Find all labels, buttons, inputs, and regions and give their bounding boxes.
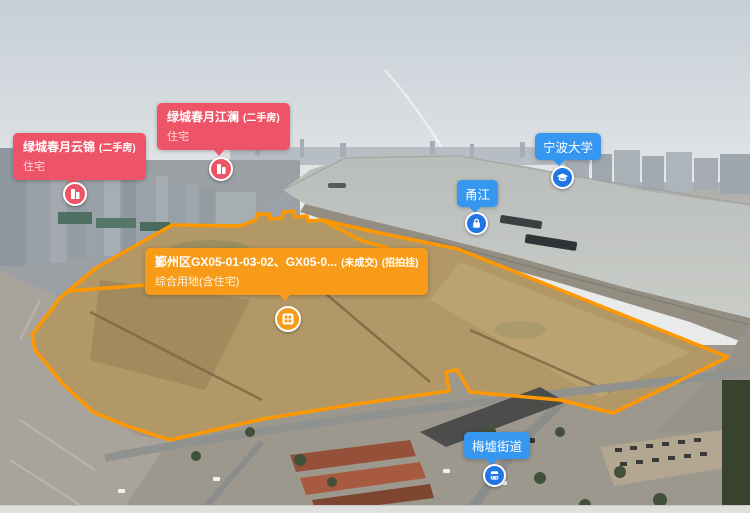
university-icon[interactable] (551, 166, 574, 189)
listing-subtitle: 住宅 (167, 131, 280, 144)
listing-label-chunyuejianglan[interactable]: 绿城春月江澜(二手房) 住宅 (157, 103, 290, 150)
place-label-yongjiang[interactable]: 甬江 (457, 180, 498, 207)
parcel-label[interactable]: 鄞州区GX05-01-03-02、GX05-0...(未成交)(招拍挂) 综合用… (145, 248, 428, 295)
label-tail (213, 149, 225, 156)
place-label-text: 宁波大学 (543, 141, 593, 155)
land-grid-icon[interactable] (275, 306, 301, 332)
label-tail (279, 294, 291, 301)
listing-subtitle: 住宅 (23, 161, 136, 174)
bus-street-icon[interactable] (483, 464, 506, 487)
river-lock-icon[interactable] (465, 212, 488, 235)
building-icon[interactable] (209, 157, 233, 181)
listing-title: 绿城春月江澜(二手房) (167, 110, 280, 126)
listing-title: 绿城春月云锦(二手房) (23, 140, 136, 156)
page-bottom-strip (0, 505, 750, 513)
parcel-title: 鄞州区GX05-01-03-02、GX05-0...(未成交)(招拍挂) (155, 255, 418, 271)
listing-label-chunyueyunjin[interactable]: 绿城春月云锦(二手房) 住宅 (13, 133, 146, 180)
parcel-subtitle: 综合用地(含住宅) (155, 276, 418, 289)
tree-band-right (722, 380, 750, 513)
map-canvas[interactable]: 绿城春月云锦(二手房) 住宅 绿城春月江澜(二手房) 住宅 鄞州区GX05-01… (0, 0, 750, 513)
place-label-text: 甬江 (465, 188, 490, 202)
place-label-ningbo-university[interactable]: 宁波大学 (535, 133, 601, 160)
place-label-meixu-street[interactable]: 梅墟街道 (464, 432, 530, 459)
place-label-text: 梅墟街道 (472, 440, 522, 454)
building-icon[interactable] (63, 182, 87, 206)
